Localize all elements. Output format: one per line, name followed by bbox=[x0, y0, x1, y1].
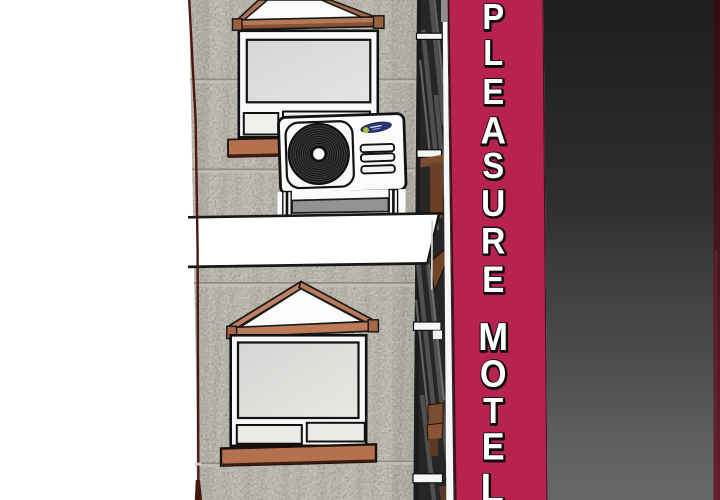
svg-text:U: U bbox=[481, 183, 505, 224]
svg-text:A: A bbox=[480, 109, 506, 151]
svg-text:E: E bbox=[482, 260, 504, 301]
svg-text:R: R bbox=[481, 220, 506, 262]
svg-text:E: E bbox=[482, 425, 505, 468]
svg-text:S: S bbox=[482, 147, 504, 187]
svg-text:L: L bbox=[483, 33, 503, 73]
svg-text:P: P bbox=[482, 0, 504, 37]
svg-text:O: O bbox=[480, 352, 507, 395]
svg-text:L: L bbox=[481, 466, 504, 500]
svg-text:E: E bbox=[482, 73, 504, 113]
